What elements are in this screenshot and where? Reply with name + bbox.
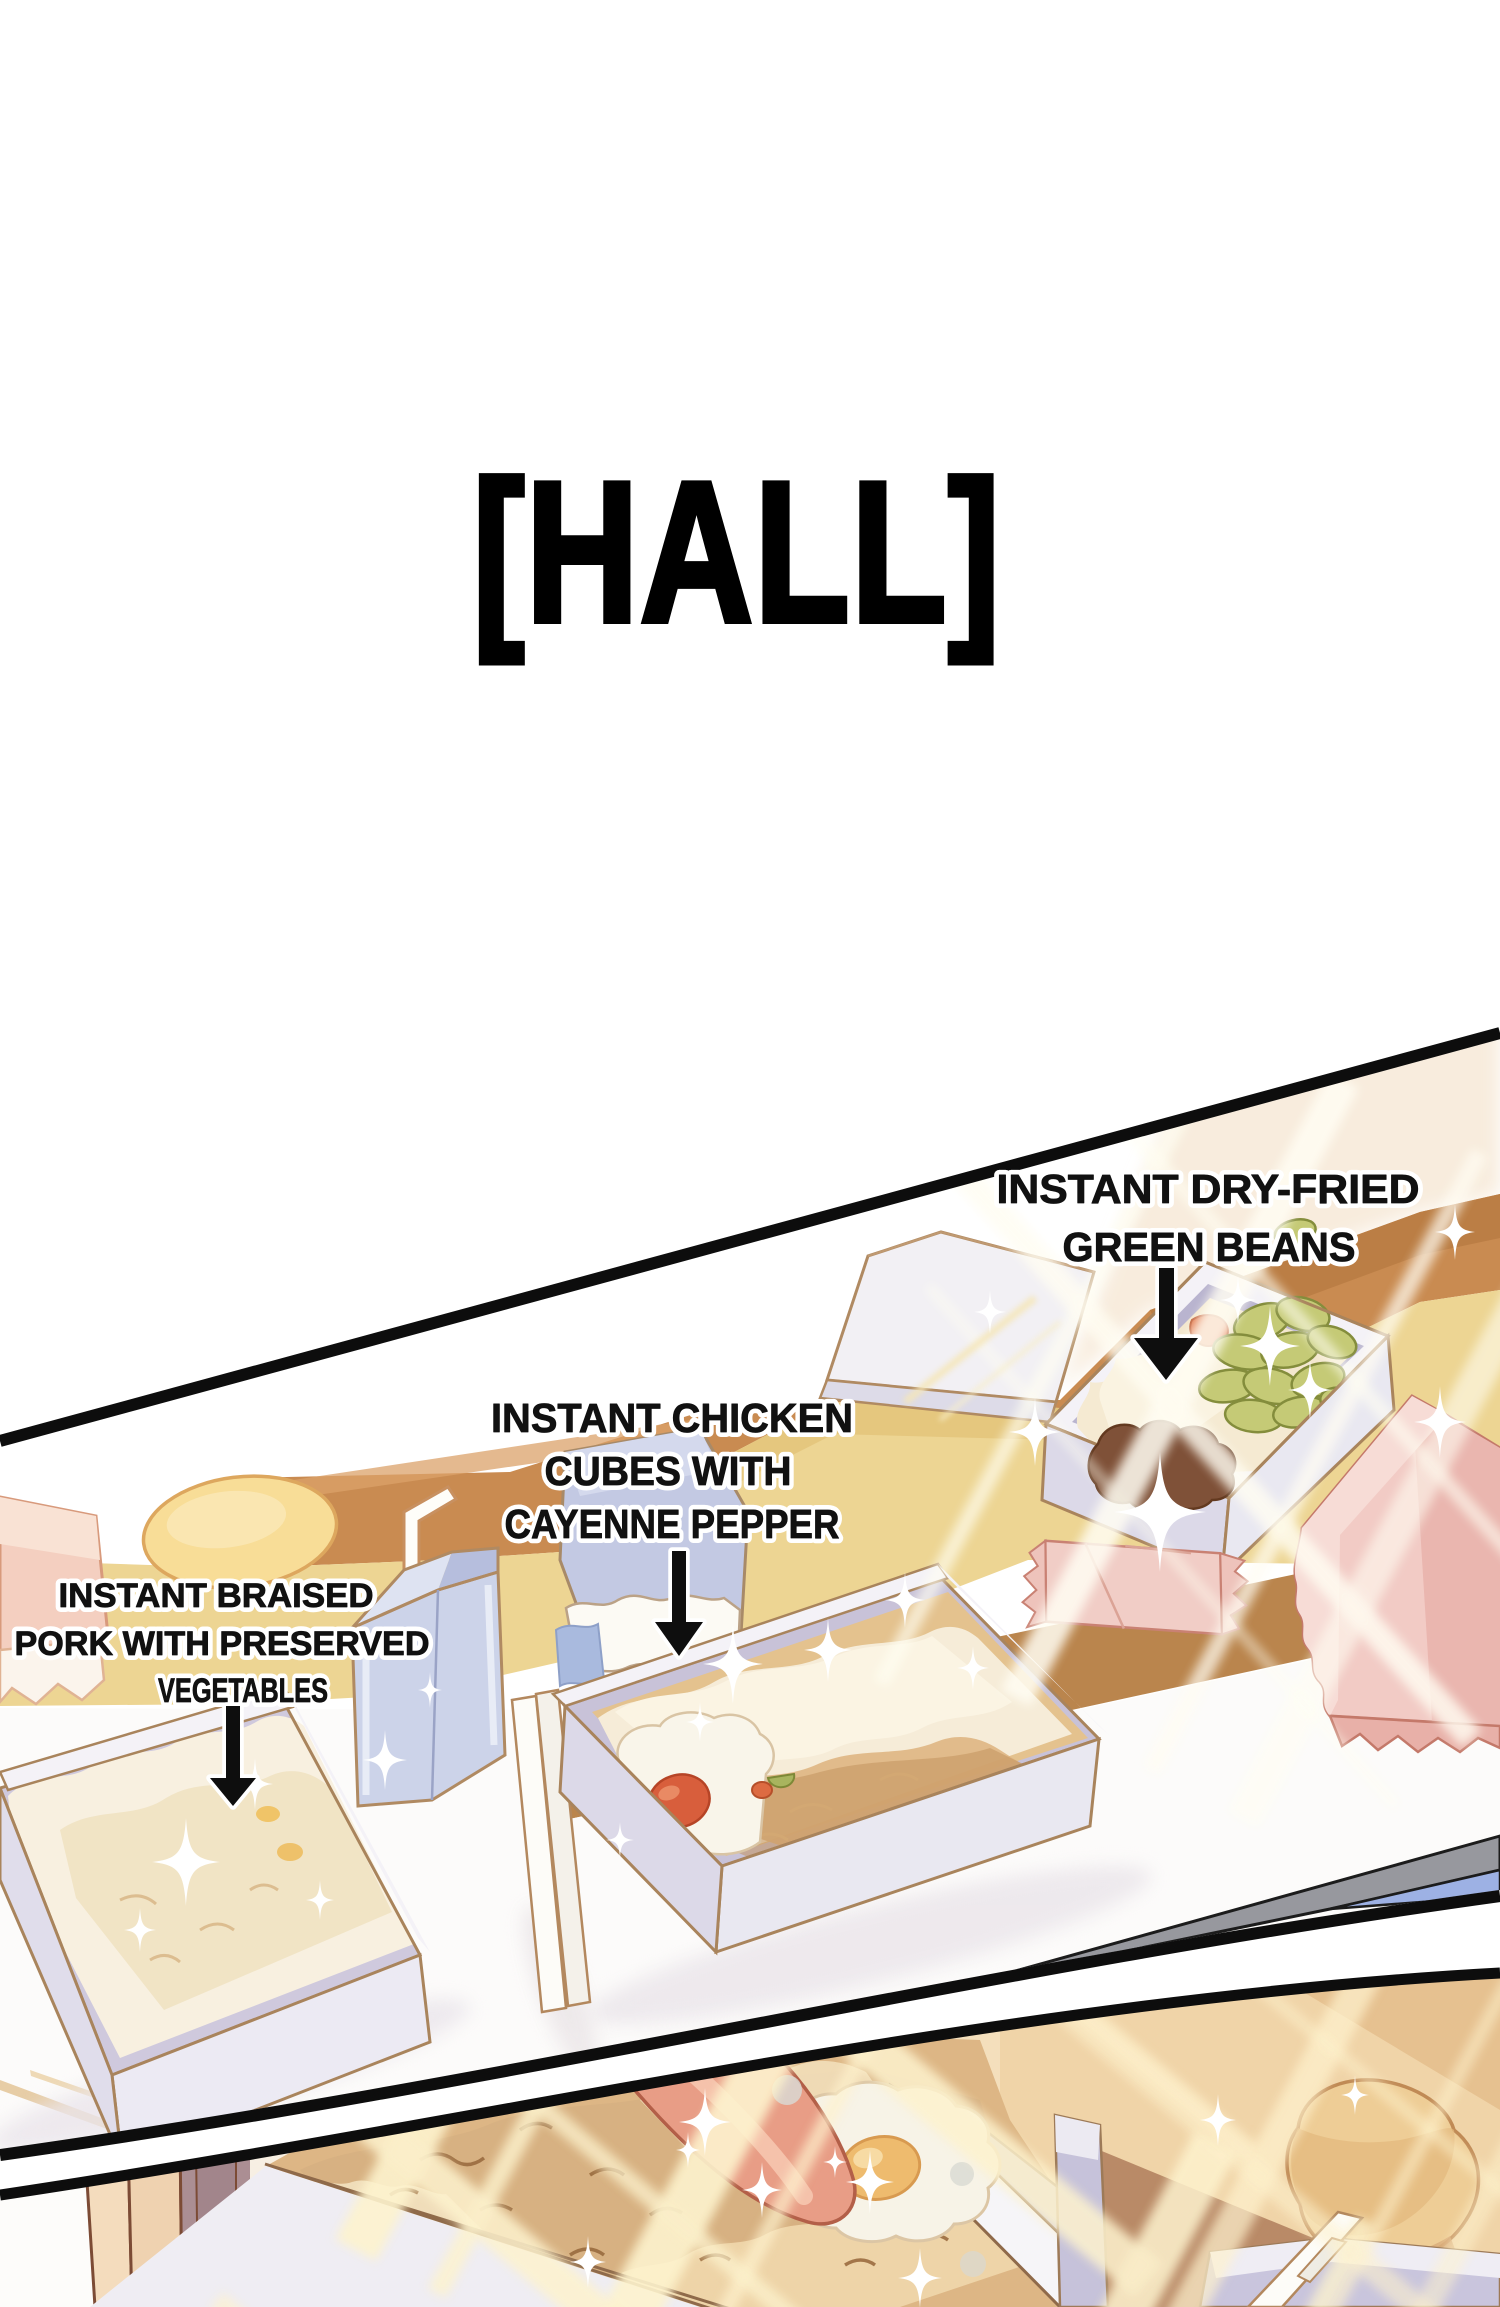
svg-text:INSTANT CHICKEN: INSTANT CHICKEN xyxy=(491,1395,853,1441)
svg-text:[HALL]: [HALL] xyxy=(472,441,1001,664)
svg-text:PORK WITH PRESERVED: PORK WITH PRESERVED xyxy=(15,1625,430,1663)
svg-text:CAYENNE PEPPER: CAYENNE PEPPER xyxy=(505,1501,840,1547)
svg-text:CUBES WITH: CUBES WITH xyxy=(545,1448,792,1494)
svg-text:INSTANT DRY-FRIED: INSTANT DRY-FRIED xyxy=(997,1166,1420,1212)
svg-text:INSTANT BRAISED: INSTANT BRAISED xyxy=(59,1577,374,1615)
svg-text:GREEN BEANS: GREEN BEANS xyxy=(1063,1224,1356,1270)
